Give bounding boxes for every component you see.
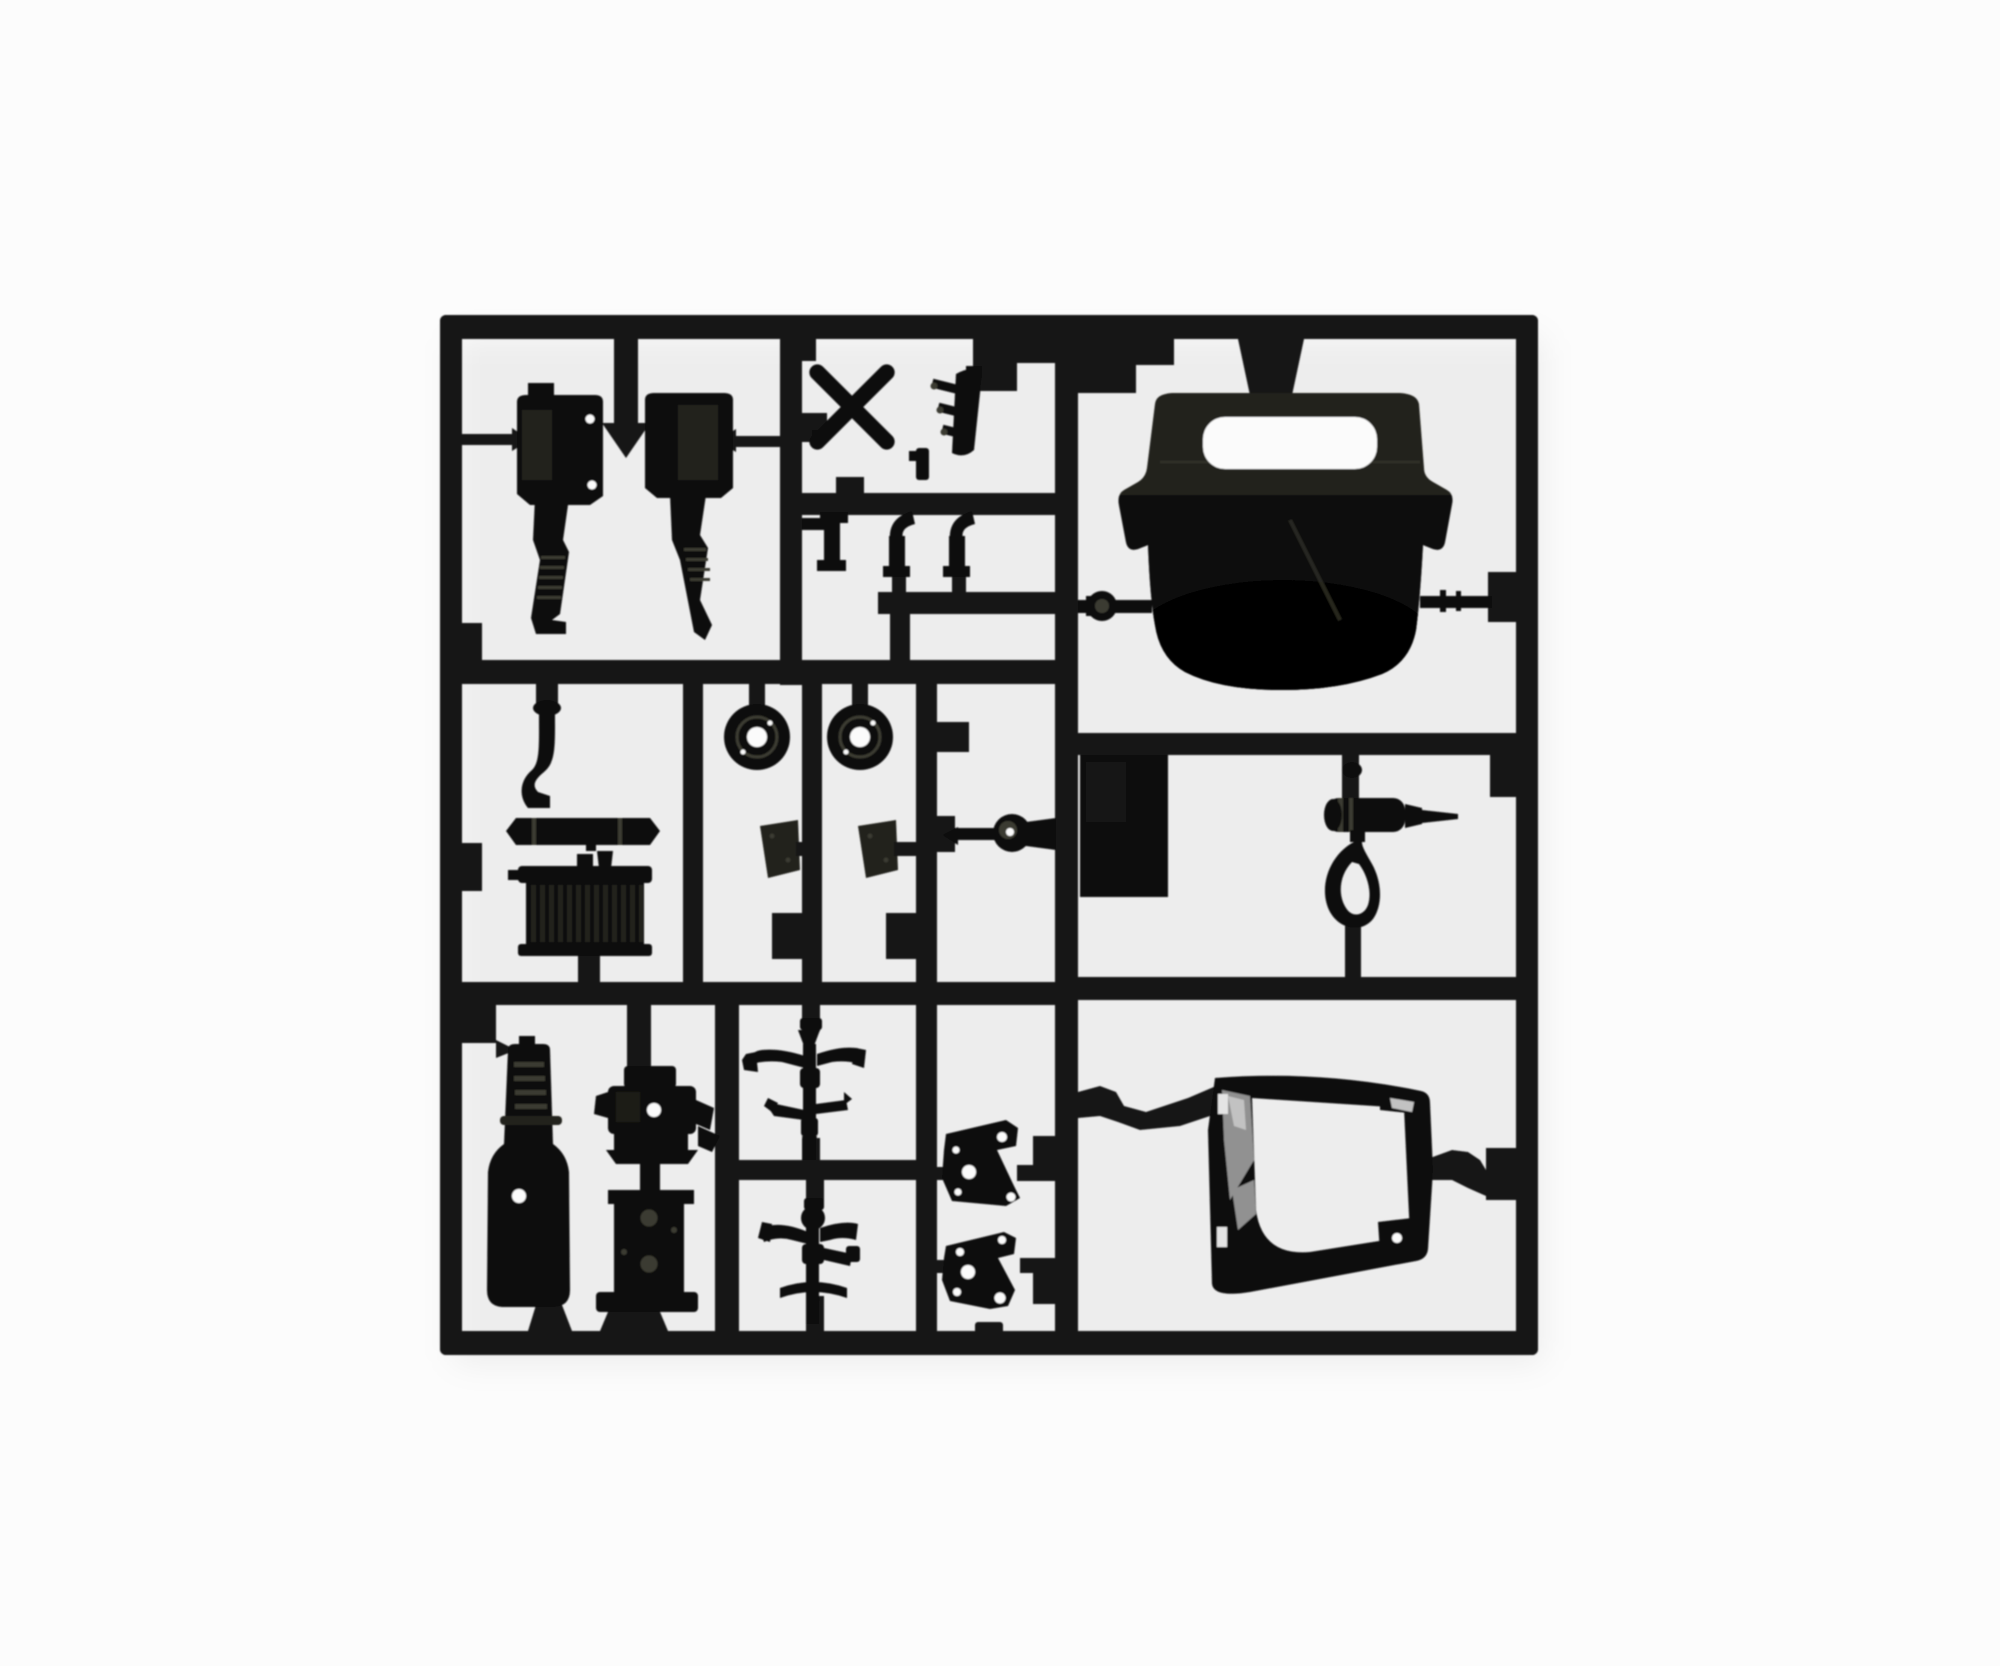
step-block [1078,337,1136,393]
sprue-gate [462,434,512,445]
mould-tab [1033,1272,1055,1304]
product-photo [0,0,2000,1666]
sprue-gate [975,1322,1003,1334]
step-block [780,337,816,361]
sprue-gate [1020,1258,1057,1273]
divider-d2 [780,493,1055,515]
divider-v4 [715,1000,739,1331]
mould-tab [886,913,916,959]
divider-d1 [440,660,1078,684]
part-radiator [508,854,652,956]
step-block [937,722,969,752]
divider-d6 [1078,977,1516,1000]
mould-tab [772,913,802,959]
divider-d4 [440,982,1078,1005]
rail-top [440,315,1538,339]
step-block [462,623,482,660]
sprue-gate [952,574,966,596]
sprue-gate [736,436,780,447]
divider-r1 [683,682,703,984]
sprue-gate [614,339,638,423]
sprue-gate [627,1005,651,1067]
sprue-gate [1017,1165,1057,1181]
part-pulley-wheel-2 [827,704,893,770]
step-block [836,477,864,493]
rail-right [1516,315,1538,1355]
divider-d4r [1078,733,1516,755]
divider-d3-stub [890,612,910,662]
step-block [1490,755,1516,797]
sprue-gate [578,952,600,984]
rail-left [440,315,462,1355]
part-pulley-wheel-1 [724,704,790,770]
divider-d5 [739,1160,916,1180]
step-block [462,1005,496,1043]
mould-tab [1033,1136,1055,1166]
sprue-gate [1345,926,1361,980]
divider-v2 [1055,315,1078,1355]
divider-r2 [802,682,822,984]
step-block [1488,572,1516,622]
step-block [462,843,482,891]
sprue-photo [0,0,2000,1666]
sprue-gate [892,574,906,596]
part-floor-panel [1080,755,1168,897]
rail-bottom [440,1331,1538,1355]
